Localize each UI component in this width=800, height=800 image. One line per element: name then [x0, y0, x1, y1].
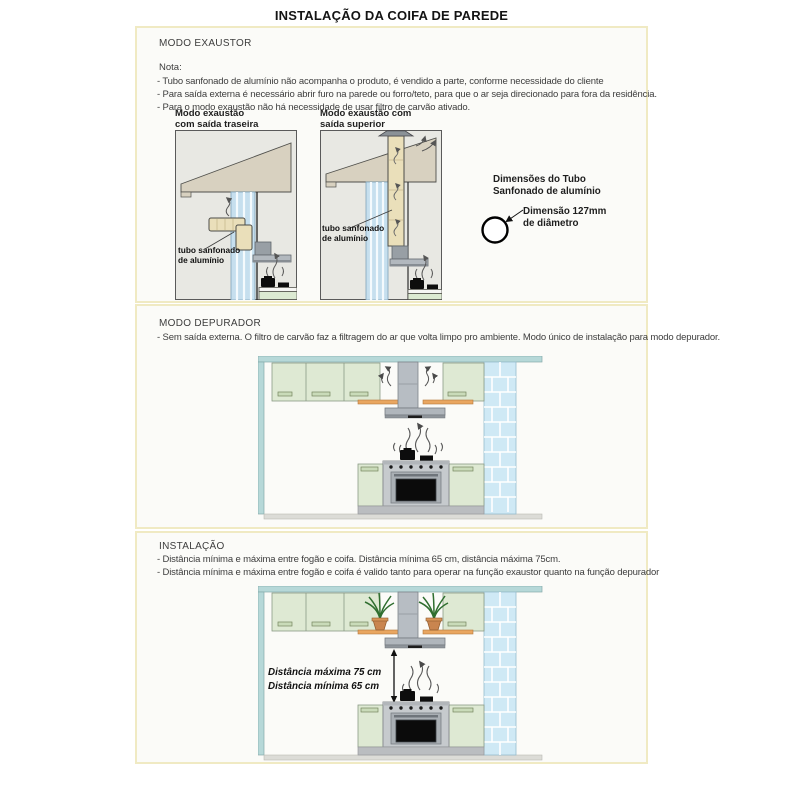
tube-diameter-line1: Dimensão 127mm: [523, 206, 606, 218]
section-heading-depurador: MODO DEPURADOR: [159, 318, 261, 329]
nota-label: Nota:: [159, 62, 182, 73]
stove: [383, 702, 449, 747]
tube-dimensions-title: Dimensões do Tubo Sanfonado de alumínio: [493, 174, 601, 198]
tube-diameter-label: Dimensão 127mm de diâmetro: [523, 206, 606, 230]
pipe-label-line2: de alumínio: [322, 233, 368, 243]
brick-wall: [484, 592, 516, 755]
diagram-rear-exit-illustration: tubo sanfonado de alumínio: [175, 130, 297, 300]
range-hood: [385, 362, 445, 418]
manual-page: INSTALAÇÃO DA COIFA DE PAREDE MODO EXAUS…: [0, 0, 800, 800]
distance-arrow: [391, 649, 397, 703]
section-heading-exaustor: MODO EXAUSTOR: [159, 38, 252, 49]
caption-rear-line2: com saída traseira: [175, 119, 258, 130]
caption-rear-exit: Modo exaustão com saída traseira: [175, 108, 258, 130]
tube-cross-section-circle: [483, 218, 508, 243]
caption-top-line1: Modo exaustão com: [320, 108, 411, 119]
caption-rear-line1: Modo exaustão: [175, 108, 258, 119]
instalacao-bullet-1: - Distância mínima e máxima entre fogão …: [157, 554, 560, 565]
pipe-label-line2: de alumínio: [178, 255, 224, 265]
pipe-label-line1: tubo sanfonado: [178, 245, 240, 255]
kitchen-illustration-distances: Distância máxima 75 cm Distância mínima …: [258, 586, 545, 762]
cooking-steam: [403, 662, 439, 693]
tube-dimensions-title-line2: Sanfonado de alumínio: [493, 186, 601, 198]
cooking-steam: [394, 424, 443, 454]
section-heading-instalacao: INSTALAÇÃO: [159, 541, 225, 552]
base-plinth: [358, 506, 484, 514]
distance-min-label: Distância mínima 65 cm: [268, 681, 379, 692]
kitchen-illustration-depurador: [258, 356, 545, 521]
depurador-bullet-1: - Sem saída externa. O filtro de carvão …: [157, 332, 720, 343]
exaustor-bullet-1: - Tubo sanfonado de alumínio não acompan…: [157, 76, 604, 87]
instalacao-bullet-2: - Distância mínima e máxima entre fogão …: [157, 567, 659, 578]
brick-wall: [484, 362, 516, 514]
tube-dimensions-title-line1: Dimensões do Tubo: [493, 174, 601, 186]
caption-top-exit: Modo exaustão com saída superior: [320, 108, 411, 130]
section-modo-depurador: MODO DEPURADOR - Sem saída externa. O fi…: [135, 304, 648, 529]
upper-cabinets: [272, 363, 484, 401]
exaustor-bullet-2: - Para saída externa é necessário abrir …: [157, 89, 657, 100]
stove: [383, 461, 449, 506]
diagram-top-exit-illustration: tubo sanfonado de alumínio: [320, 130, 442, 300]
tube-diameter-line2: de diâmetro: [523, 218, 606, 230]
pots: [400, 689, 433, 702]
diameter-pointer-arrow: [507, 210, 523, 221]
section-instalacao: INSTALAÇÃO - Distância mínima e máxima e…: [135, 531, 648, 764]
page-title: INSTALAÇÃO DA COIFA DE PAREDE: [135, 8, 648, 23]
caption-top-line2: saída superior: [320, 119, 411, 130]
base-plinth: [358, 747, 484, 755]
distance-max-label: Distância máxima 75 cm: [268, 667, 382, 678]
pipe-label-line1: tubo sanfonado: [322, 223, 384, 233]
section-modo-exaustor: MODO EXAUSTOR Nota: - Tubo sanfonado de …: [135, 26, 648, 303]
